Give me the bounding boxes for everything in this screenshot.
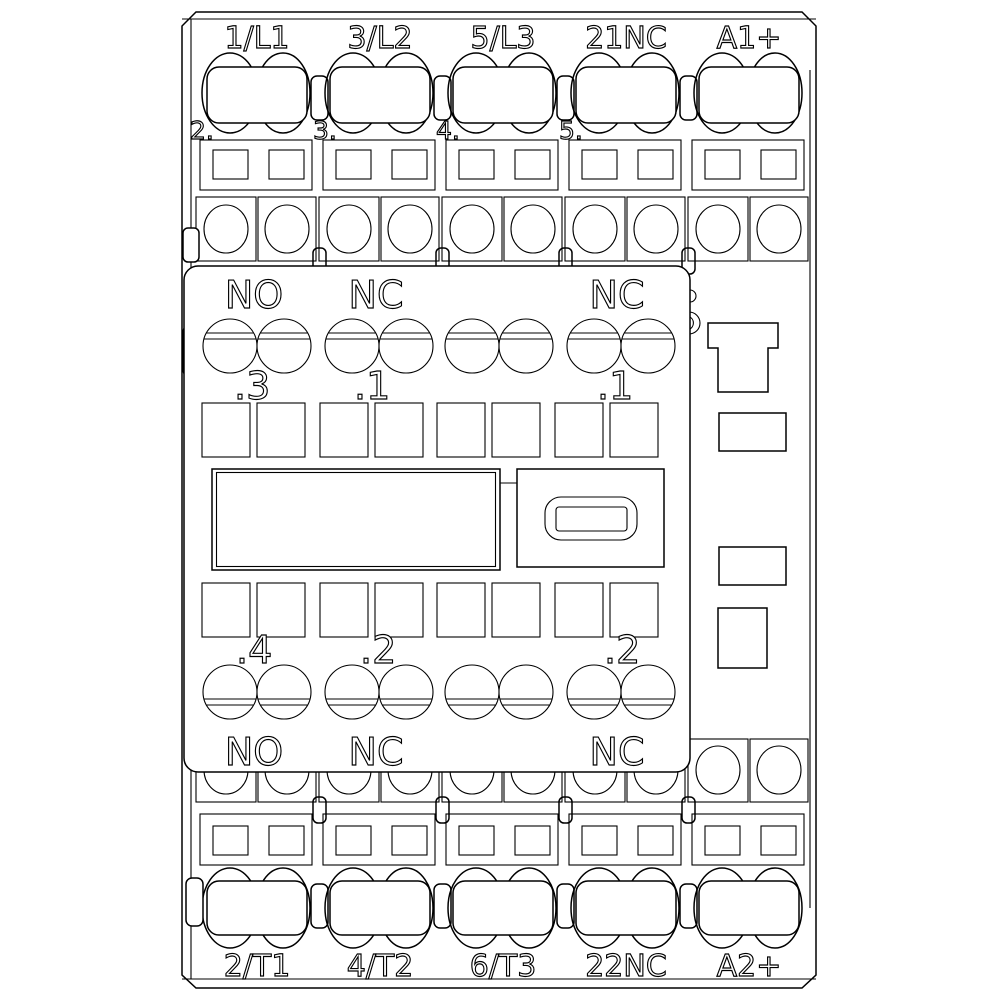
mounting-t-tab xyxy=(708,323,778,392)
terminal-window xyxy=(330,67,430,123)
screw-hole xyxy=(269,826,304,855)
screw-hole xyxy=(582,150,617,179)
pole-number: 4. xyxy=(436,116,460,145)
aux-contact-type-label: NC xyxy=(349,273,404,317)
screw-hole xyxy=(761,826,796,855)
release-cell xyxy=(688,197,748,261)
terminal-window xyxy=(330,881,430,935)
screw-port-frame xyxy=(569,814,681,865)
top-terminal-label: 5/L3 xyxy=(471,21,536,56)
screw-hole xyxy=(459,826,494,855)
side-slot xyxy=(719,547,786,585)
terminal-window xyxy=(453,881,553,935)
screw-hole xyxy=(515,826,550,855)
aux-contact-type-label: NO xyxy=(225,730,283,774)
screw-port-frame xyxy=(692,814,804,865)
screw-port-frame xyxy=(446,814,558,865)
release-opening xyxy=(388,205,432,253)
terminal-window xyxy=(453,67,553,123)
release-opening xyxy=(327,205,371,253)
screw-hole xyxy=(213,826,248,855)
terminal-window xyxy=(699,67,799,123)
aux-circuit-number: .2 xyxy=(604,628,640,672)
aux-circuit-number: .1 xyxy=(354,364,390,408)
release-opening xyxy=(573,205,617,253)
screw-port-frame xyxy=(323,140,435,190)
screw-port-frame xyxy=(692,140,804,190)
release-opening xyxy=(757,746,801,794)
screw-hole xyxy=(392,150,427,179)
release-opening xyxy=(757,205,801,253)
release-cell xyxy=(442,197,502,261)
screw-hole xyxy=(336,826,371,855)
side-slot xyxy=(718,608,767,668)
aux-circuit-number: .4 xyxy=(236,628,272,672)
actuator-box xyxy=(517,469,664,567)
release-cell xyxy=(627,197,685,261)
screw-hole xyxy=(213,150,248,179)
contactor-front-diagram: 1/L12.2/T13/L23.4/T25/L34.6/T321NC5.22NC… xyxy=(0,0,1000,1000)
release-cell xyxy=(258,197,316,261)
release-cell xyxy=(381,197,439,261)
side-slot xyxy=(719,413,786,451)
screw-port-frame xyxy=(323,814,435,865)
release-opening xyxy=(450,205,494,253)
release-opening xyxy=(634,205,678,253)
pole-number: 3. xyxy=(313,116,337,145)
screw-hole xyxy=(705,150,740,179)
terminal-window xyxy=(207,67,307,123)
screw-port-frame xyxy=(200,814,312,865)
left-tab xyxy=(186,878,203,926)
bottom-terminal-label: 2/T1 xyxy=(224,949,291,984)
aux-contact-type-label: NC xyxy=(349,730,404,774)
left-tab xyxy=(183,228,199,262)
release-cell xyxy=(750,197,808,261)
screw-hole xyxy=(269,150,304,179)
top-terminal-label: 3/L2 xyxy=(348,21,413,56)
screw-hole xyxy=(582,826,617,855)
aux-contact-type-label: NO xyxy=(225,273,283,317)
bottom-terminal-label: 6/T3 xyxy=(470,949,537,984)
top-terminal-label: 1/L1 xyxy=(225,21,290,56)
aux-contact-type-label: NC xyxy=(590,730,645,774)
release-opening xyxy=(265,205,309,253)
screw-hole xyxy=(459,150,494,179)
aux-circuit-number: .2 xyxy=(360,628,396,672)
screw-port-frame xyxy=(200,140,312,190)
top-terminal-label: A1+ xyxy=(717,21,782,56)
release-cell xyxy=(319,197,379,261)
terminal-window xyxy=(207,881,307,935)
terminal-window xyxy=(576,881,676,935)
aux-circuit-number: .1 xyxy=(597,364,633,408)
release-opening xyxy=(204,205,248,253)
top-terminal-label: 21NC xyxy=(585,21,667,56)
release-cell xyxy=(504,197,562,261)
side-features xyxy=(689,290,786,668)
screw-hole xyxy=(761,150,796,179)
terminal-window xyxy=(576,67,676,123)
pole-number: 5. xyxy=(559,116,583,145)
screw-port-frame xyxy=(569,140,681,190)
label-plate-frame xyxy=(212,469,500,570)
release-opening xyxy=(511,205,555,253)
bottom-terminal-label: A2+ xyxy=(717,949,782,984)
aux-circuit-number: .3 xyxy=(234,364,270,408)
bottom-terminal-label: 22NC xyxy=(585,949,667,984)
release-cell xyxy=(688,739,748,802)
release-cell xyxy=(565,197,625,261)
release-opening xyxy=(696,746,740,794)
screw-hole xyxy=(336,150,371,179)
aux-contact-type-label: NC xyxy=(590,273,645,317)
screw-hole xyxy=(638,150,673,179)
pole-number: 2. xyxy=(190,116,214,145)
aux-contact-block: NO.3.4NONC.1.2NCNC.1.2NC xyxy=(184,266,690,774)
bottom-terminal-label: 4/T2 xyxy=(347,949,414,984)
screw-hole xyxy=(638,826,673,855)
release-cell xyxy=(196,197,256,261)
screw-hole xyxy=(705,826,740,855)
label-plate xyxy=(212,469,664,570)
diagram-canvas: 1/L12.2/T13/L23.4/T25/L34.6/T321NC5.22NC… xyxy=(0,0,1000,1000)
hidden-circle-arc xyxy=(690,290,696,302)
screw-hole xyxy=(515,150,550,179)
screw-port-frame xyxy=(446,140,558,190)
terminal-window xyxy=(699,881,799,935)
release-cell xyxy=(750,739,808,802)
screw-hole xyxy=(392,826,427,855)
release-opening xyxy=(696,205,740,253)
